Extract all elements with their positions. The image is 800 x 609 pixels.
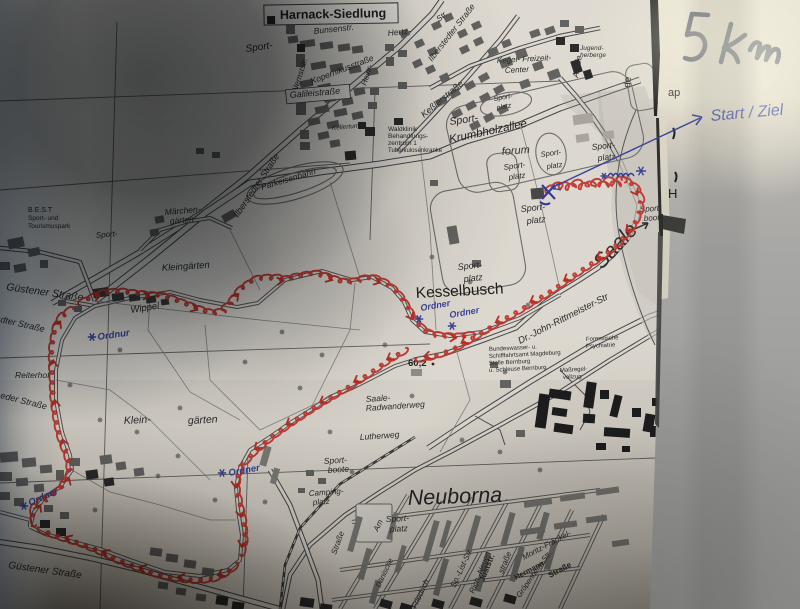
svg-text:Sport-: Sport- — [95, 229, 118, 240]
svg-text:platz: platz — [525, 214, 546, 226]
svg-text:Behandlungs-: Behandlungs- — [388, 133, 428, 140]
svg-text:Jugend-: Jugend- — [579, 45, 604, 52]
svg-text:zentrum 1: zentrum 1 — [388, 140, 417, 147]
svg-text:gärten: gärten — [188, 413, 219, 427]
svg-text:platz: platz — [389, 523, 409, 534]
svg-text:Sport- und: Sport- und — [28, 215, 59, 222]
svg-text:forum: forum — [501, 144, 530, 158]
svg-text:Klein-: Klein- — [124, 414, 152, 427]
svg-text:Neuborna: Neuborna — [407, 483, 502, 510]
svg-text:Center: Center — [505, 65, 530, 75]
svg-text:B.E.S.T: B.E.S.T — [28, 207, 53, 214]
svg-text:Waldklinik: Waldklinik — [388, 126, 418, 133]
svg-text:gärten: gärten — [169, 214, 194, 226]
svg-text:60,2: 60,2 — [408, 358, 427, 369]
svg-text:de: de — [622, 76, 634, 88]
svg-text:herberge: herberge — [580, 52, 606, 59]
svg-text:H: H — [668, 186, 677, 201]
svg-text:Harnack-Siedlung: Harnack-Siedlung — [280, 6, 387, 22]
svg-text:ap: ap — [668, 87, 680, 99]
svg-text:vollzug: vollzug — [563, 374, 582, 381]
svg-text:platz: platz — [312, 497, 330, 507]
svg-text:Tuberkulosenkranke: Tuberkulosenkranke — [388, 148, 443, 154]
svg-text:boote: boote — [327, 464, 349, 475]
svg-text:Tourismuspark: Tourismuspark — [28, 223, 71, 230]
svg-text:Reiterhof: Reiterhof — [15, 370, 51, 380]
